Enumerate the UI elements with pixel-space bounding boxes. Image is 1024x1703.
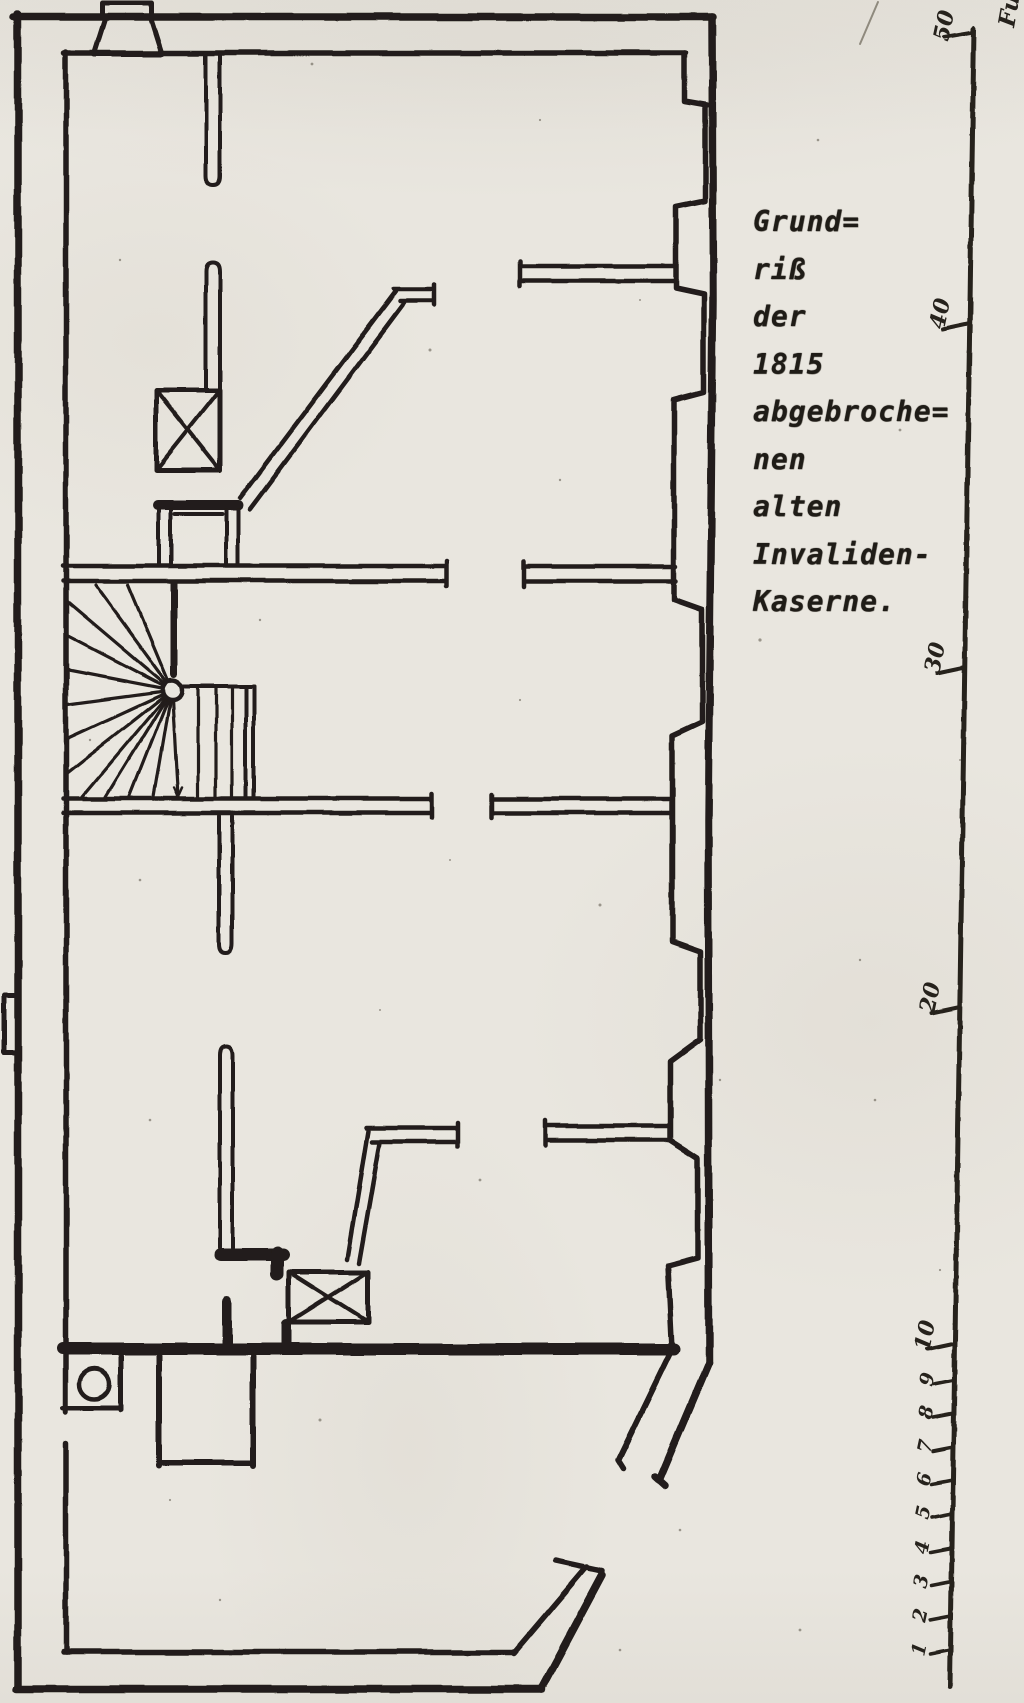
partition-row-1 <box>520 261 674 286</box>
well-box <box>63 1356 121 1410</box>
scale-label-7: 7 <box>913 1438 937 1456</box>
partition-row-4 <box>545 1121 670 1145</box>
caption-line: Invaliden- <box>753 531 1013 579</box>
interior-wall-top <box>206 53 220 185</box>
scale-label-3: 3 <box>909 1573 933 1591</box>
scale-label-2: 2 <box>908 1607 932 1625</box>
interior-wall-middle-upper <box>219 816 232 953</box>
caption-line: nen <box>753 436 1013 484</box>
caption-line: Grund= <box>753 198 1013 246</box>
caption-line: 1815 <box>753 341 1013 389</box>
interior-wall-middle-lower <box>220 1046 233 1247</box>
caption-line: abgebroche= <box>753 388 1013 436</box>
tiled-stove <box>94 3 162 54</box>
cellar-box <box>159 1356 253 1466</box>
scale-unit-label: Fuß <box>993 0 1024 30</box>
caption-line: der <box>753 293 1013 341</box>
scale-label-6: 6 <box>912 1471 936 1489</box>
scale-label-8: 8 <box>914 1404 938 1422</box>
scale-label-1: 1 <box>907 1641 931 1659</box>
scanned-floor-plan-page: { "caption": { "lines": ["Grund=", "riß"… <box>0 0 1024 1703</box>
scale-label-5: 5 <box>911 1504 935 1522</box>
straight-stair-lower <box>347 1123 458 1263</box>
chimney-box-upper <box>156 390 220 470</box>
caption-block: Grund= riß der 1815 abgebroche= nen alte… <box>753 198 1013 626</box>
caption-line: Kaserne. <box>753 578 1013 626</box>
scale-label-9: 9 <box>915 1371 939 1389</box>
scale-label-4: 4 <box>910 1539 934 1557</box>
partition-row-2 <box>63 561 676 586</box>
caption-line: riß <box>753 246 1013 294</box>
wall-step-connector <box>221 1252 286 1350</box>
stove-box <box>158 505 238 564</box>
interior-wall-stairhall <box>206 263 220 390</box>
caption-line: alten <box>753 483 1013 531</box>
chimney-box-lower <box>289 1272 368 1322</box>
well-circle <box>80 1369 110 1399</box>
stray-mark <box>860 2 878 44</box>
right-wall-niches <box>668 108 705 1349</box>
straight-stair-upper <box>240 284 434 509</box>
scale-label-50: 50 <box>928 7 960 43</box>
spiral-staircase <box>68 583 254 797</box>
